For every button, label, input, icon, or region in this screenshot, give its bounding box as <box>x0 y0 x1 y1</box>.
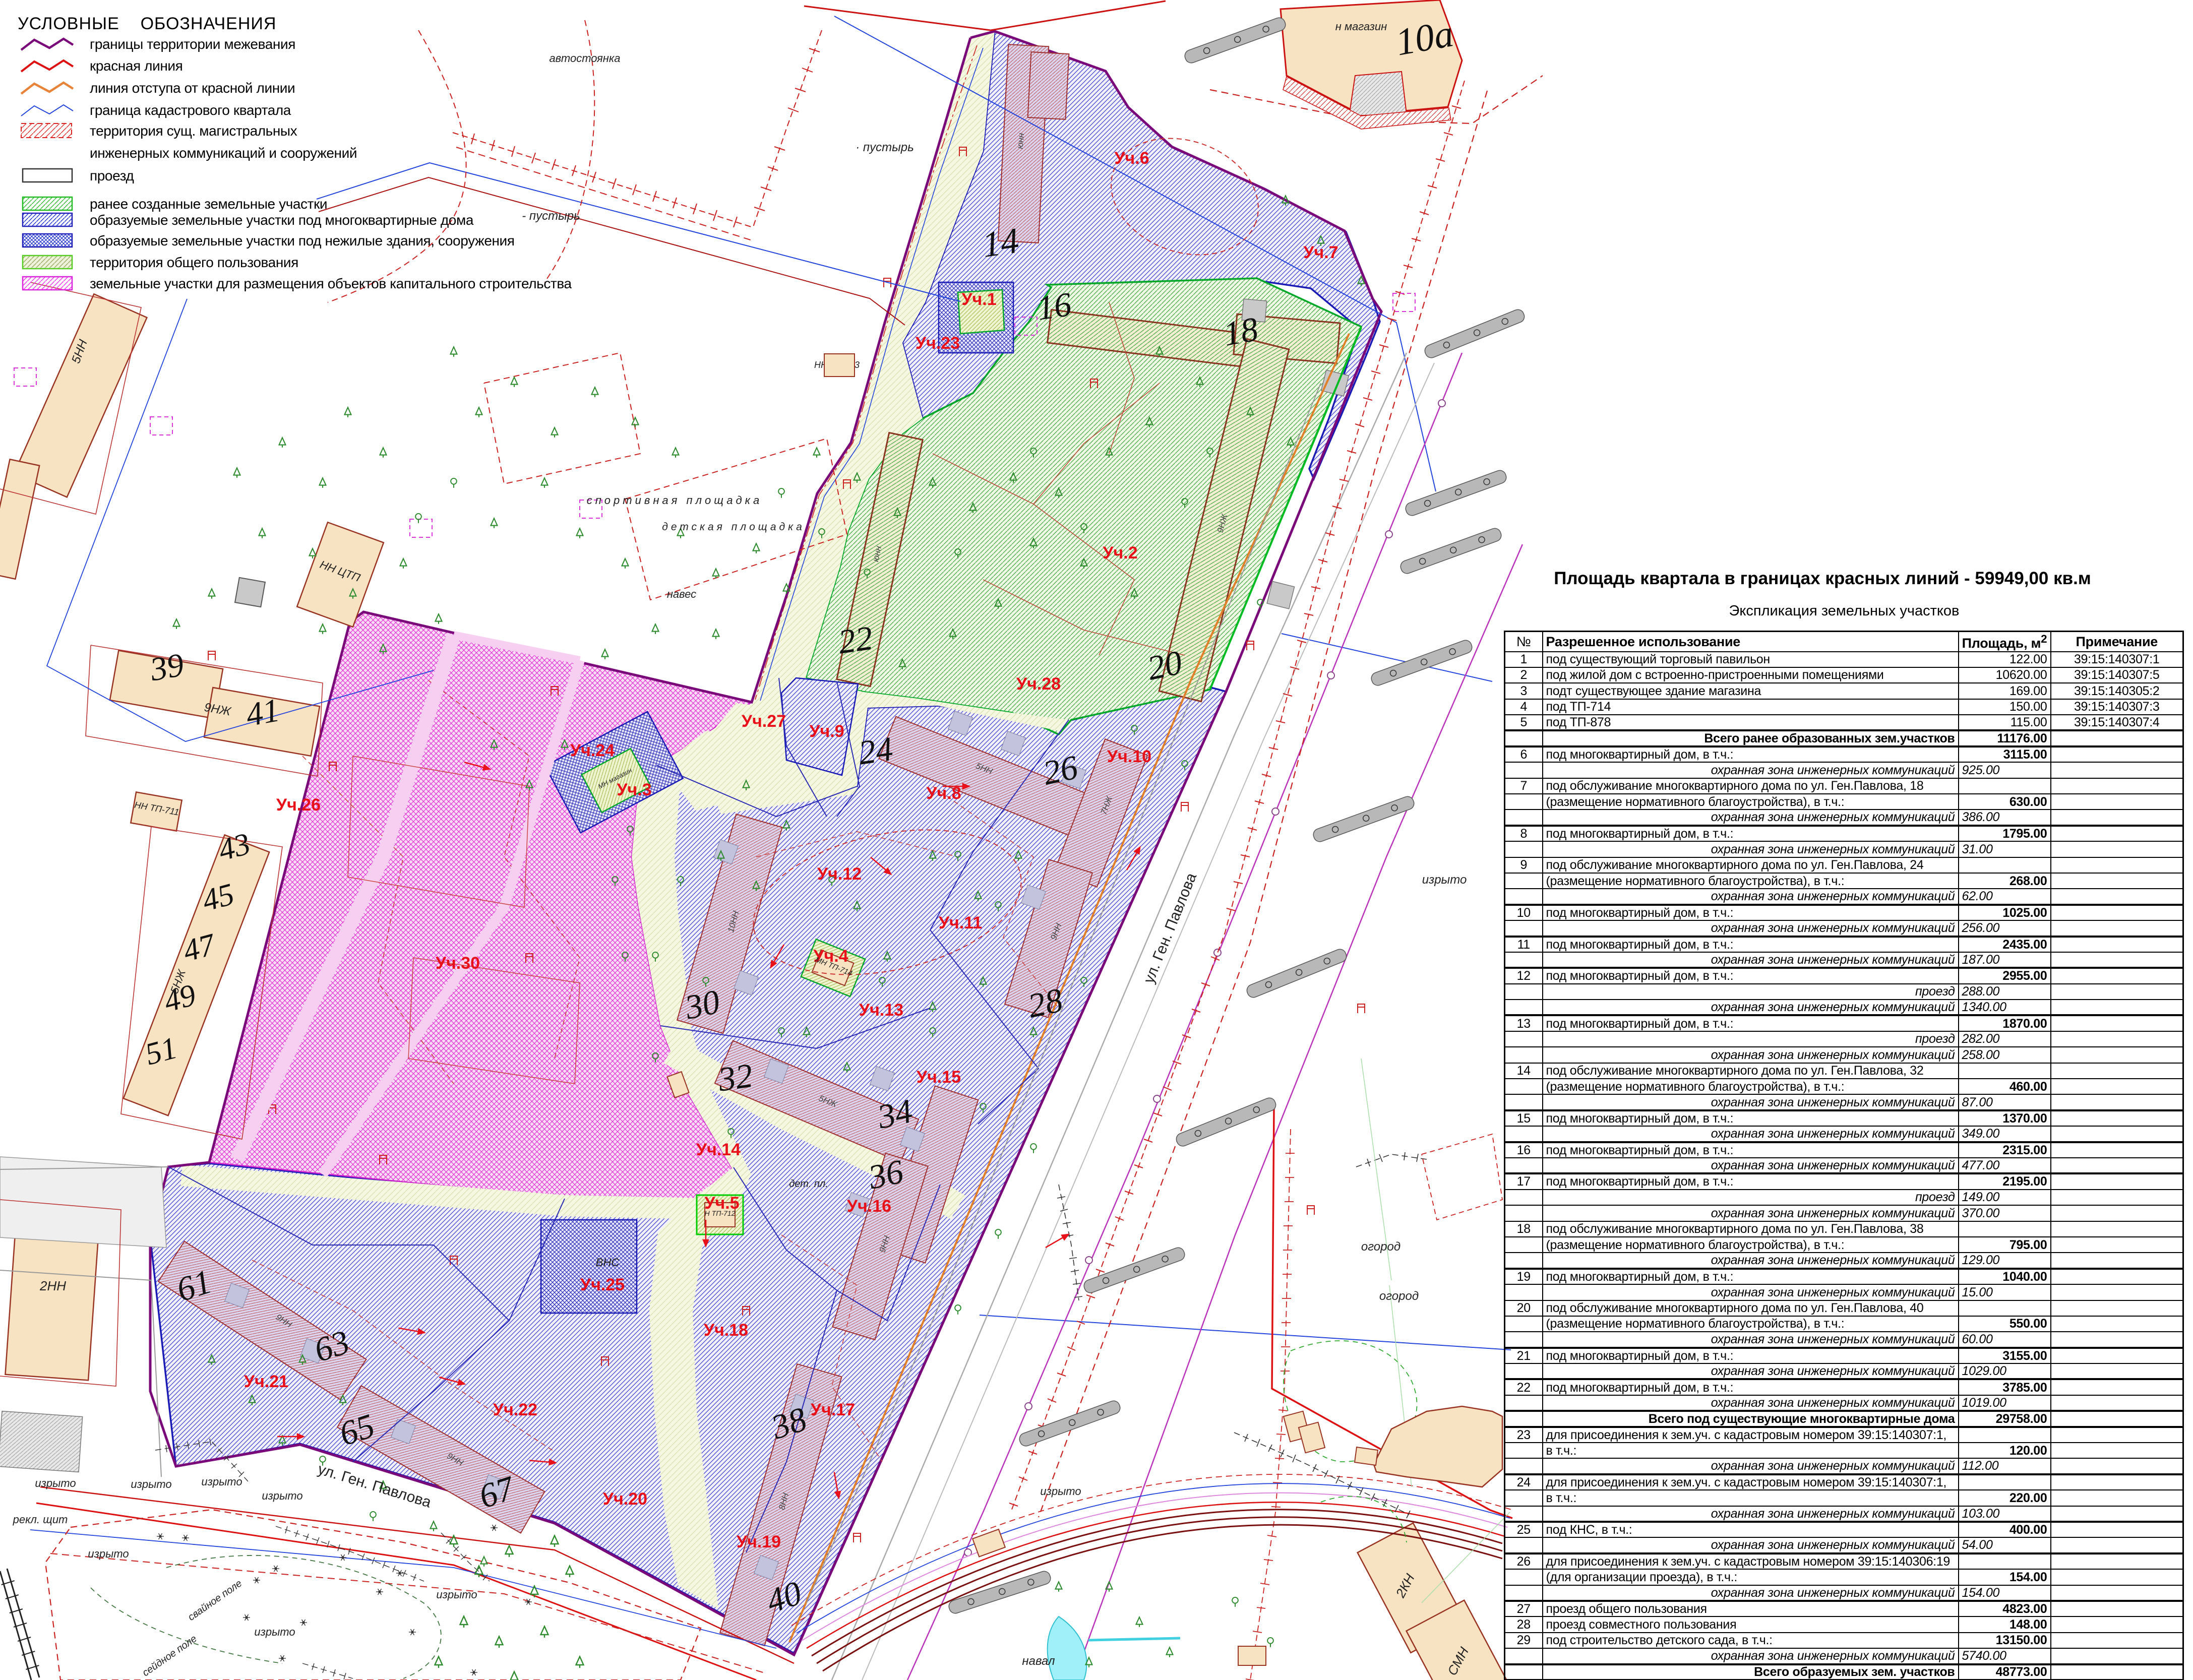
svg-text:14: 14 <box>980 220 1021 265</box>
svg-text:огород: огород <box>1379 1289 1419 1303</box>
svg-text:16: 16 <box>1034 285 1074 328</box>
svg-text:Уч.3: Уч.3 <box>617 780 651 799</box>
svg-text:Уч.28: Уч.28 <box>1016 674 1061 694</box>
svg-text:Уч.22: Уч.22 <box>493 1400 537 1419</box>
svg-text:сейдное поле: сейдное поле <box>141 1633 199 1678</box>
svg-text:Уч.21: Уч.21 <box>244 1372 288 1391</box>
svg-text:Уч.10: Уч.10 <box>1107 747 1151 766</box>
svg-text:детская площадка: детская площадка <box>662 521 805 533</box>
svg-text:2НН: 2НН <box>39 1278 66 1293</box>
svg-text:изрыто: изрыто <box>131 1478 171 1490</box>
svg-text:Уч.9: Уч.9 <box>809 722 844 741</box>
svg-text:изрыто: изрыто <box>1422 873 1467 887</box>
svg-text:Уч.1: Уч.1 <box>961 290 996 309</box>
svg-text:Уч.12: Уч.12 <box>817 864 862 884</box>
svg-text:Уч.25: Уч.25 <box>580 1275 625 1294</box>
svg-text:Уч.13: Уч.13 <box>859 1001 903 1020</box>
svg-text:Уч.23: Уч.23 <box>916 334 960 353</box>
svg-text:· пустырь: · пустырь <box>856 141 914 154</box>
svg-text:Уч.14: Уч.14 <box>696 1140 741 1159</box>
svg-text:Уч.6: Уч.6 <box>1114 149 1149 168</box>
svg-text:Уч.20: Уч.20 <box>603 1489 647 1509</box>
svg-text:навес: навес <box>667 588 696 600</box>
svg-text:Уч.17: Уч.17 <box>811 1400 855 1419</box>
svg-text:ВНС: ВНС <box>596 1256 620 1269</box>
svg-text:Уч.16: Уч.16 <box>847 1197 891 1216</box>
svg-text:изрыто: изрыто <box>436 1588 477 1601</box>
svg-text:огород: огород <box>1361 1240 1400 1254</box>
svg-text:Уч.24: Уч.24 <box>570 741 615 760</box>
svg-text:41: 41 <box>243 692 282 733</box>
svg-text:рекл. щит: рекл. щит <box>13 1513 68 1526</box>
svg-text:изрыто: изрыто <box>262 1489 302 1502</box>
svg-text:Уч.15: Уч.15 <box>917 1068 961 1087</box>
svg-text:Уч.7: Уч.7 <box>1303 243 1338 262</box>
svg-text:свайное поле: свайное поле <box>186 1578 244 1623</box>
svg-text:спортивная площадка: спортивная площадка <box>587 494 763 507</box>
svg-text:39: 39 <box>147 646 187 689</box>
svg-text:Уч.2: Уч.2 <box>1103 543 1137 563</box>
svg-text:Уч.18: Уч.18 <box>704 1321 748 1340</box>
svg-text:Уч.19: Уч.19 <box>737 1532 781 1551</box>
svg-text:32: 32 <box>715 1056 755 1099</box>
svg-text:изрыто: изрыто <box>201 1475 242 1488</box>
svg-text:18: 18 <box>1221 309 1261 353</box>
svg-text:Уч.30: Уч.30 <box>436 954 480 973</box>
svg-text:изрыто: изрыто <box>254 1626 295 1638</box>
svg-text:юнн: юнн <box>1015 132 1026 149</box>
svg-text:изрыто: изрыто <box>88 1547 129 1560</box>
svg-text:навал: навал <box>1022 1654 1055 1668</box>
svg-text:Уч.26: Уч.26 <box>276 795 321 815</box>
svg-text:н магазин: н магазин <box>1335 20 1387 33</box>
svg-text:Уч.27: Уч.27 <box>742 712 786 731</box>
svg-text:изрыто: изрыто <box>1040 1485 1081 1498</box>
svg-text:ул. Ген. Павлова: ул. Ген. Павлова <box>1140 870 1200 986</box>
svg-text:Уч.11: Уч.11 <box>939 913 982 932</box>
svg-text:22: 22 <box>836 618 875 661</box>
svg-text:24: 24 <box>856 729 895 772</box>
svg-text:изрыто: изрыто <box>35 1477 76 1489</box>
svg-text:Н ТП-712: Н ТП-712 <box>705 1209 736 1217</box>
svg-text:дет. пл.: дет. пл. <box>789 1178 828 1190</box>
